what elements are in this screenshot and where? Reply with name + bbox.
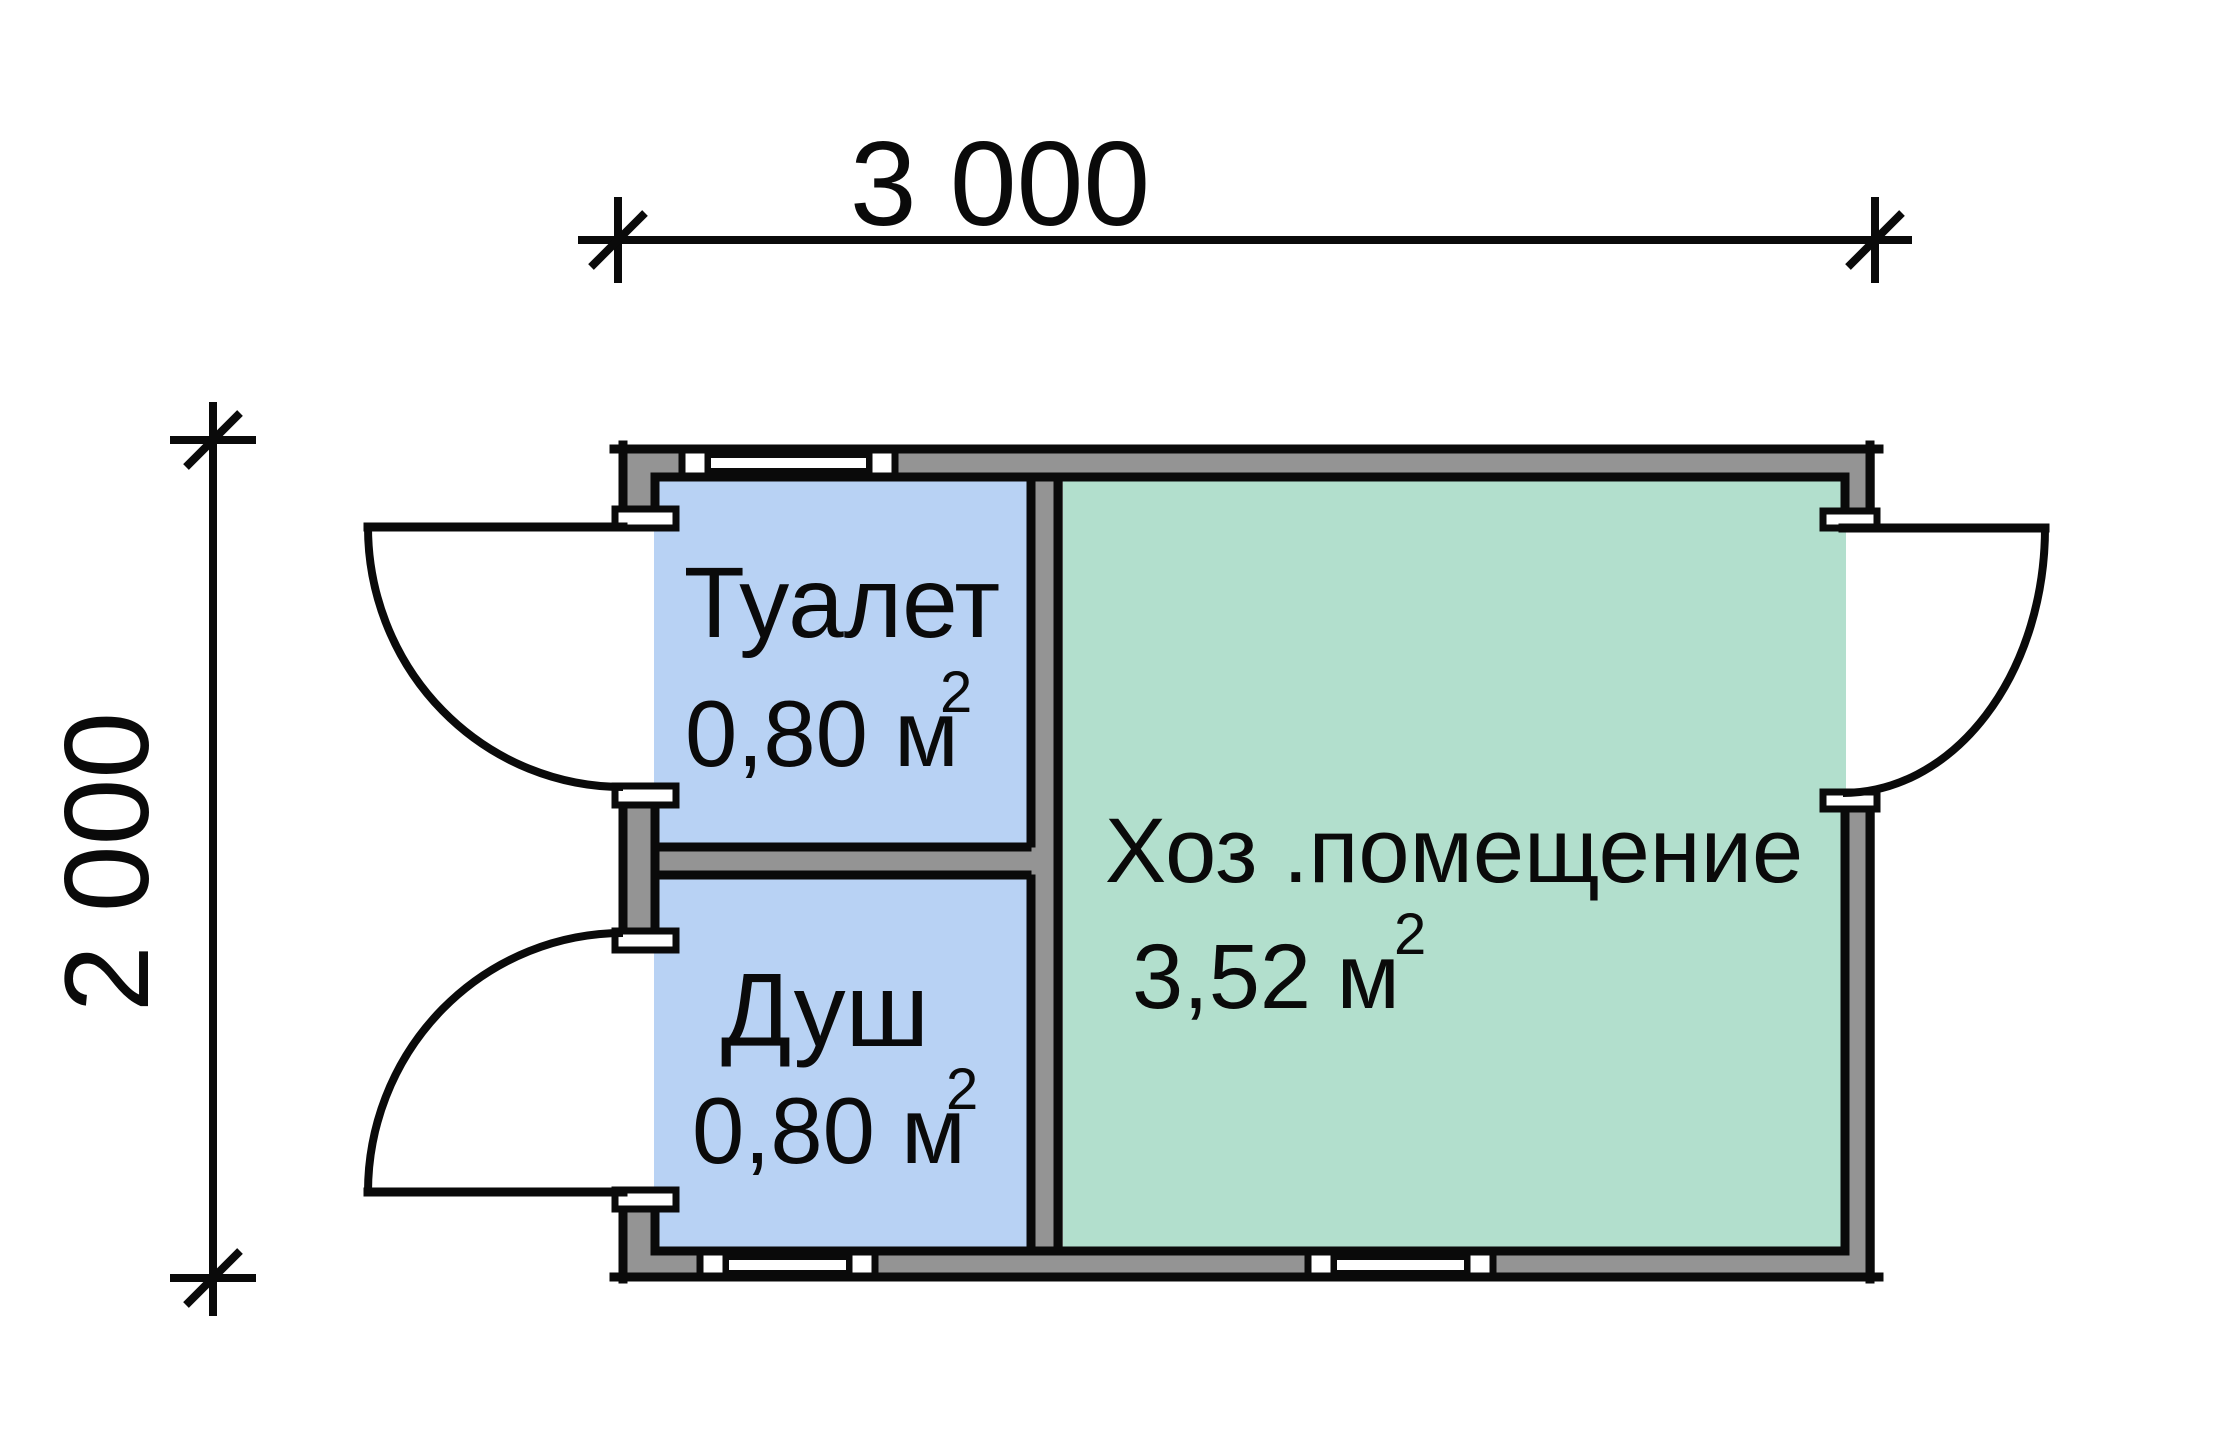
door-utility-swing-arc	[1843, 528, 2045, 793]
dimension-width-label: 3 000	[850, 117, 1150, 251]
room-shower-area-sup: 2	[946, 1057, 978, 1122]
room-shower-area: 0,80 м	[692, 1078, 966, 1183]
room-toilet-name: Туалет	[684, 547, 1000, 659]
dimension-height: 2 000	[40, 402, 256, 1316]
dimension-height-label: 2 000	[40, 712, 174, 1012]
room-shower-name: Душ	[721, 953, 929, 1069]
door-toilet-jamb-bottom	[615, 786, 676, 805]
door-shower-swing-arc	[368, 933, 623, 1192]
room-toilet-fill	[654, 474, 1031, 846]
door-toilet-swing-arc	[368, 527, 623, 787]
room-utility-name: Хоз .помещение	[1105, 800, 1803, 902]
dimension-width: 3 000	[578, 117, 1912, 283]
window-bottom-shower-sash	[726, 1257, 849, 1273]
door-shower-jamb-top	[615, 931, 676, 950]
room-toilet-area: 0,80 м	[685, 681, 959, 786]
room-toilet-area-sup: 2	[940, 660, 972, 725]
window-top-sash	[708, 455, 869, 471]
floor-plan-page: 3 000 2 000 Туалет 0,80 м 2 Душ 0,80 м 2…	[0, 0, 2225, 1432]
window-bottom-utility-sash	[1334, 1257, 1467, 1273]
floor-plan-svg: 3 000 2 000 Туалет 0,80 м 2 Душ 0,80 м 2…	[0, 0, 2225, 1432]
room-utility-area: 3,52 м	[1132, 926, 1400, 1028]
room-utility-area-sup: 2	[1394, 902, 1426, 967]
